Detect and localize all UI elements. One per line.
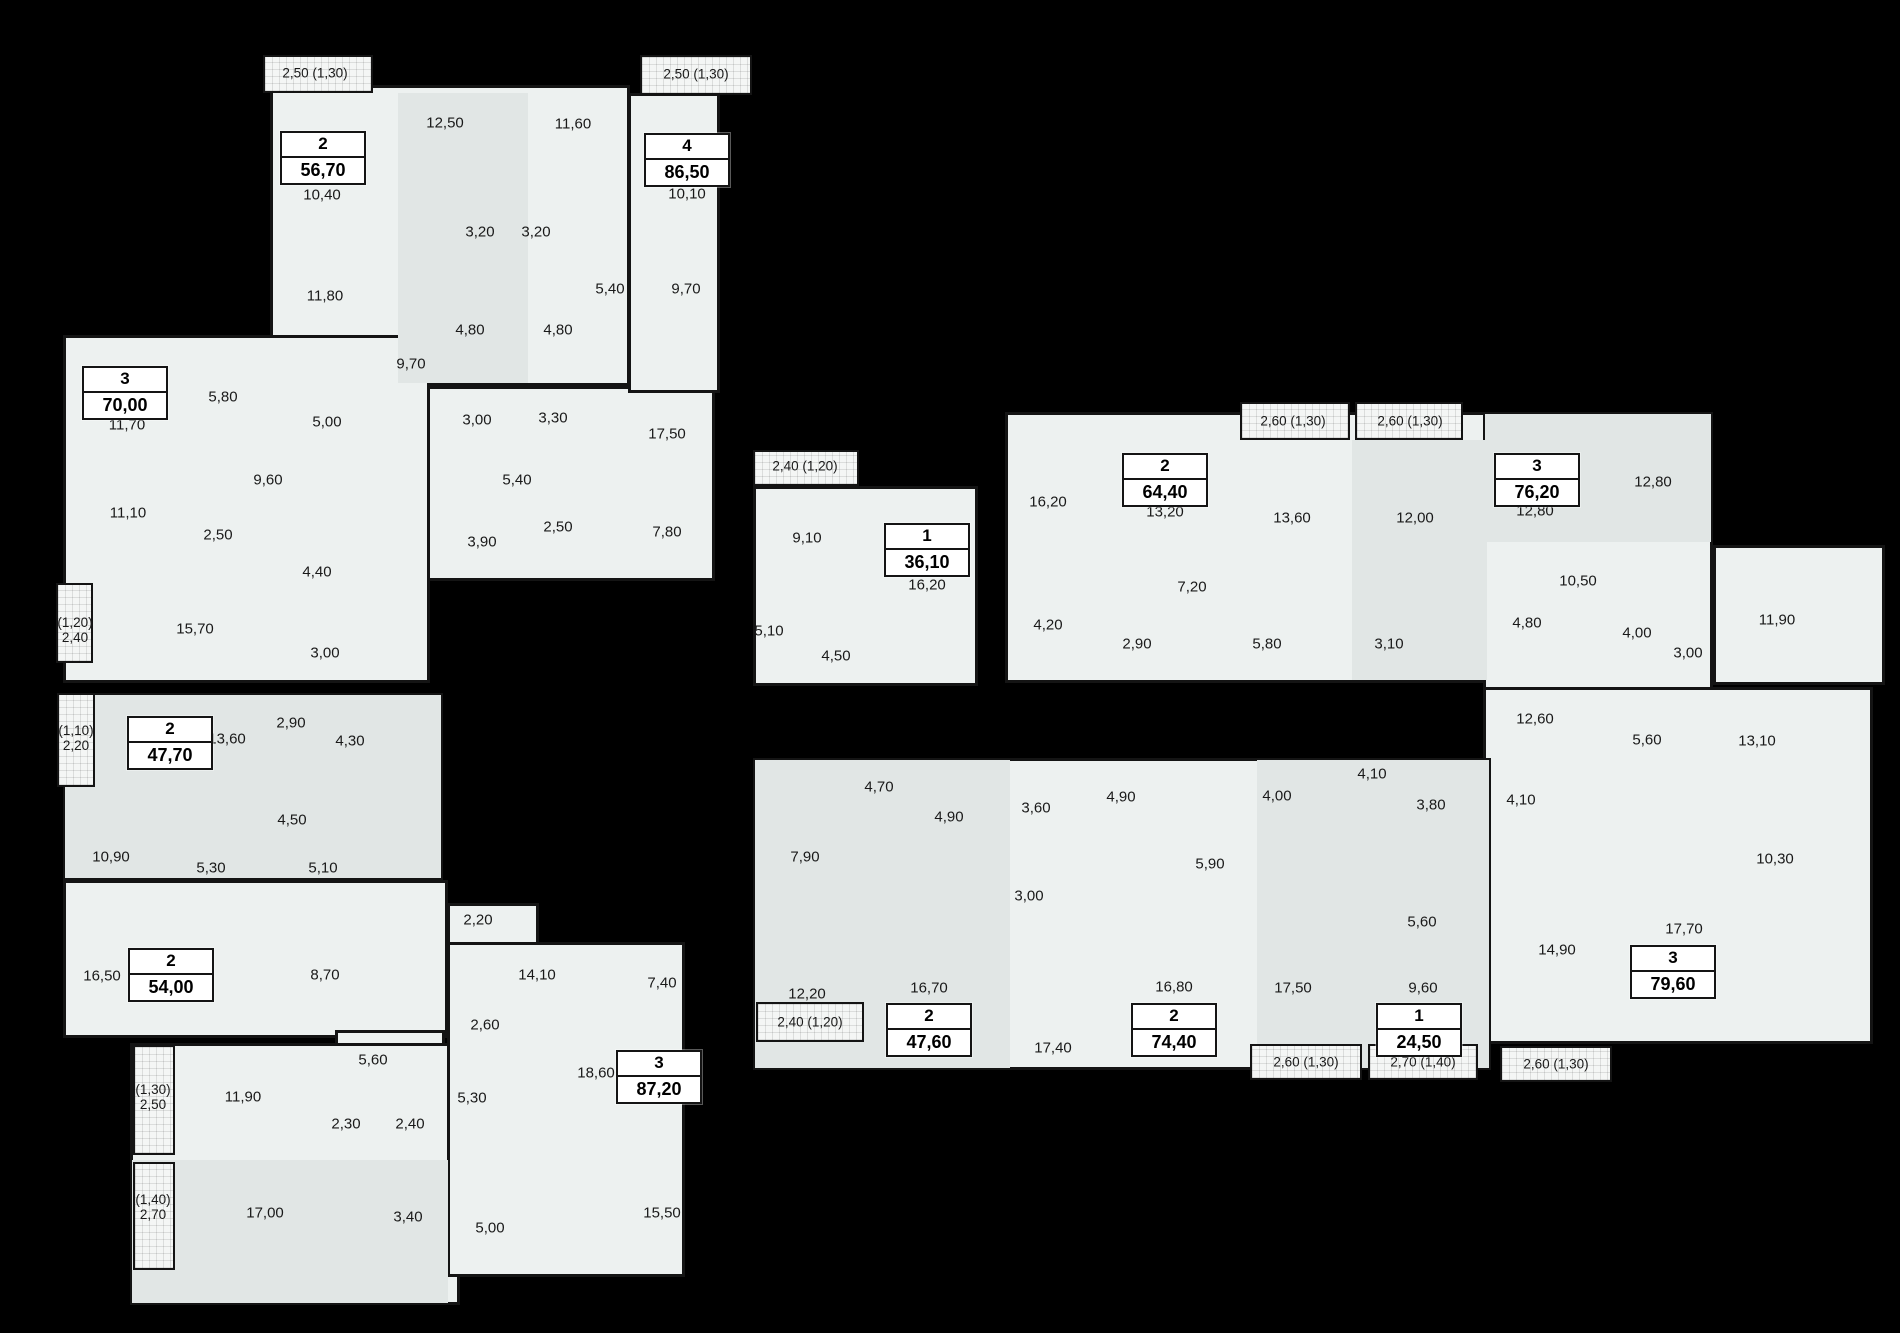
room-area-label: 4,80	[1512, 615, 1541, 632]
room-area-label: 5,00	[475, 1220, 504, 1237]
room-area-label: 12,60	[1516, 711, 1554, 728]
apartment-block	[1713, 545, 1885, 685]
room-area-label: 2,90	[276, 715, 305, 732]
room-area-label: 3,20	[521, 224, 550, 241]
balcony-area-line: 2,50	[135, 1097, 170, 1112]
balcony-area-line: 2,70	[135, 1207, 170, 1222]
room-area-label: 9,60	[1408, 980, 1437, 997]
room-area-label: 5,40	[595, 281, 624, 298]
room-area-label: 5,00	[312, 414, 341, 431]
room-area-label: 14,90	[1538, 942, 1576, 959]
room-shade	[1352, 440, 1487, 680]
room-area-label: 5,30	[457, 1090, 486, 1107]
room-area-label: 12,20	[788, 986, 826, 1003]
apartment-total-area: 47,60	[888, 1030, 970, 1055]
room-area-label: 4,90	[1106, 789, 1135, 806]
room-area-label: 17,70	[1665, 921, 1703, 938]
room-area-label: 2,60	[470, 1017, 499, 1034]
room-area-label: 10,40	[303, 187, 341, 204]
room-area-label: 4,90	[934, 809, 963, 826]
room-area-label: 4,10	[1506, 792, 1535, 809]
balcony-area-line: 2,20	[58, 738, 93, 753]
apartment-badge: 254,00	[128, 948, 214, 1002]
apartment-badge: 136,10	[884, 523, 970, 577]
room-area-label: 10,90	[92, 849, 130, 866]
room-area-label: 4,00	[1622, 625, 1651, 642]
room-area-label: 5,30	[196, 860, 225, 877]
room-area-label: 11,60	[555, 116, 591, 133]
apartment-rooms-count: 3	[84, 368, 166, 393]
room-area-label: 3,00	[310, 645, 339, 662]
apartment-total-area: 74,40	[1133, 1030, 1215, 1055]
balcony-area-line: (1,30)	[135, 1082, 170, 1097]
room-area-label: 13,60	[208, 731, 246, 748]
apartment-badge: 124,50	[1376, 1003, 1462, 1057]
apartment-total-area: 87,20	[618, 1077, 700, 1102]
room-area-label: 3,00	[462, 412, 491, 429]
room-area-label: 4,20	[1033, 617, 1062, 634]
room-area-label: 3,20	[465, 224, 494, 241]
apartment-rooms-count: 3	[1632, 947, 1714, 972]
room-area-label: 10,10	[668, 186, 706, 203]
room-area-label: 2,50	[543, 519, 572, 536]
room-area-label: 7,80	[652, 524, 681, 541]
room-area-label: 2,40	[395, 1116, 424, 1133]
balcony-area-label: 2,40 (1,20)	[772, 458, 837, 473]
apartment-rooms-count: 1	[1378, 1005, 1460, 1030]
room-area-label: 3,60	[1021, 800, 1050, 817]
balcony-area-label: 2,50 (1,30)	[282, 65, 347, 80]
apartment-rooms-count: 2	[888, 1005, 970, 1030]
apartment-total-area: 86,50	[646, 160, 728, 185]
room-area-label: 17,50	[1274, 980, 1312, 997]
apartment-badge: 264,40	[1122, 453, 1208, 507]
apartment-badge: 387,20	[616, 1050, 702, 1104]
room-area-label: 3,80	[1416, 797, 1445, 814]
room-area-label: 15,70	[176, 621, 214, 638]
apartment-total-area: 47,70	[129, 743, 211, 768]
room-area-label: 4,70	[864, 779, 893, 796]
room-area-label: 5,60	[1407, 914, 1436, 931]
room-area-label: 5,10	[754, 623, 783, 640]
room-area-label: 10,30	[1756, 851, 1794, 868]
balcony-area-label: 2,40 (1,20)	[777, 1014, 842, 1029]
apartment-block	[447, 903, 539, 945]
balcony-area-label: 2,60 (1,30)	[1273, 1054, 1338, 1069]
room-area-label: 9,60	[253, 472, 282, 489]
room-area-label: 4,40	[302, 564, 331, 581]
room-area-label: 4,50	[821, 648, 850, 665]
room-area-label: 5,10	[308, 860, 337, 877]
room-area-label: 14,10	[518, 967, 556, 984]
apartment-badge: 370,00	[82, 366, 168, 420]
room-area-label: 3,10	[1374, 636, 1403, 653]
floor-plan: 12,5011,6010,4010,103,203,2011,805,409,7…	[0, 0, 1900, 1333]
room-area-label: 7,20	[1177, 579, 1206, 596]
balcony-area-line: (1,20)	[57, 615, 92, 630]
room-area-label: 4,80	[455, 322, 484, 339]
room-area-label: 3,00	[1014, 888, 1043, 905]
room-area-label: 3,90	[467, 534, 496, 551]
room-area-label: 5,80	[1252, 636, 1281, 653]
room-area-label: 2,30	[331, 1116, 360, 1133]
balcony-area-label: 2,60 (1,30)	[1377, 413, 1442, 428]
apartment-rooms-count: 2	[129, 718, 211, 743]
room-area-label: 16,50	[83, 968, 121, 985]
room-area-label: 3,30	[538, 410, 567, 427]
room-area-label: 7,90	[790, 849, 819, 866]
balcony-area-line: (1,10)	[58, 723, 93, 738]
apartment-total-area: 24,50	[1378, 1030, 1460, 1055]
room-area-label: 4,30	[335, 733, 364, 750]
balcony-area-label: (1,20)2,40	[57, 615, 92, 645]
room-area-label: 5,40	[502, 472, 531, 489]
apartment-badge: 379,60	[1630, 945, 1716, 999]
room-area-label: 3,00	[1673, 645, 1702, 662]
apartment-badge: 247,70	[127, 716, 213, 770]
apartment-total-area: 36,10	[886, 550, 968, 575]
room-area-label: 5,60	[1632, 732, 1661, 749]
room-area-label: 4,00	[1262, 788, 1291, 805]
room-area-label: 11,80	[307, 288, 343, 305]
apartment-rooms-count: 2	[1124, 455, 1206, 480]
room-area-label: 8,70	[310, 967, 339, 984]
apartment-badge: 376,20	[1494, 453, 1580, 507]
room-area-label: 17,00	[246, 1205, 284, 1222]
room-area-label: 11,90	[225, 1089, 261, 1106]
balcony-area-label: 2,60 (1,30)	[1260, 413, 1325, 428]
room-area-label: 2,50	[203, 527, 232, 544]
room-area-label: 18,60	[577, 1065, 615, 1082]
room-area-label: 13,10	[1738, 733, 1776, 750]
apartment-rooms-count: 2	[1133, 1005, 1215, 1030]
room-area-label: 9,70	[396, 356, 425, 373]
apartment-total-area: 64,40	[1124, 480, 1206, 505]
apartment-block	[63, 880, 448, 1038]
room-area-label: 15,50	[643, 1205, 681, 1222]
room-area-label: 3,40	[393, 1209, 422, 1226]
balcony-area-label: (1,30)2,50	[135, 1082, 170, 1112]
room-area-label: 10,50	[1559, 573, 1597, 590]
apartment-total-area: 54,00	[130, 975, 212, 1000]
balcony-area-label: (1,40)2,70	[135, 1192, 170, 1222]
apartment-rooms-count: 3	[618, 1052, 700, 1077]
apartment-rooms-count: 2	[130, 950, 212, 975]
room-area-label: 5,80	[208, 389, 237, 406]
room-area-label: 12,80	[1634, 474, 1672, 491]
apartment-rooms-count: 1	[886, 525, 968, 550]
room-area-label: 5,90	[1195, 856, 1224, 873]
apartment-badge: 274,40	[1131, 1003, 1217, 1057]
apartment-badge: 247,60	[886, 1003, 972, 1057]
room-area-label: 4,80	[543, 322, 572, 339]
room-area-label: 16,70	[910, 980, 948, 997]
room-area-label: 11,10	[110, 505, 146, 522]
room-area-label: 16,20	[1029, 494, 1067, 511]
room-area-label: 17,50	[648, 426, 686, 443]
room-area-label: 16,80	[1155, 979, 1193, 996]
apartment-rooms-count: 3	[1496, 455, 1578, 480]
balcony-area-label: 2,60 (1,30)	[1523, 1056, 1588, 1071]
room-area-label: 12,00	[1396, 510, 1434, 527]
room-area-label: 2,90	[1122, 636, 1151, 653]
apartment-rooms-count: 2	[282, 133, 364, 158]
room-shade	[132, 1160, 448, 1303]
room-area-label: 16,20	[908, 577, 946, 594]
apartment-total-area: 76,20	[1496, 480, 1578, 505]
apartment-badge: 256,70	[280, 131, 366, 185]
apartment-total-area: 79,60	[1632, 972, 1714, 997]
room-area-label: 5,60	[358, 1052, 387, 1069]
apartment-badge: 486,50	[644, 133, 730, 187]
room-area-label: 2,20	[463, 912, 492, 929]
room-area-label: 17,40	[1034, 1040, 1072, 1057]
room-shade	[398, 93, 528, 383]
balcony-area-line: (1,40)	[135, 1192, 170, 1207]
balcony-area-label: 2,50 (1,30)	[663, 66, 728, 81]
room-area-label: 4,50	[277, 812, 306, 829]
room-area-label: 11,90	[1759, 612, 1795, 629]
room-area-label: 9,10	[792, 530, 821, 547]
room-area-label: 7,40	[647, 975, 676, 992]
room-area-label: 4,10	[1357, 766, 1386, 783]
apartment-total-area: 56,70	[282, 158, 364, 183]
room-area-label: 9,70	[671, 281, 700, 298]
room-area-label: 12,50	[426, 115, 464, 132]
balcony-area-label: (1,10)2,20	[58, 723, 93, 753]
apartment-total-area: 70,00	[84, 393, 166, 418]
room-area-label: 13,60	[1273, 510, 1311, 527]
apartment-rooms-count: 4	[646, 135, 728, 160]
balcony-area-line: 2,40	[57, 630, 92, 645]
